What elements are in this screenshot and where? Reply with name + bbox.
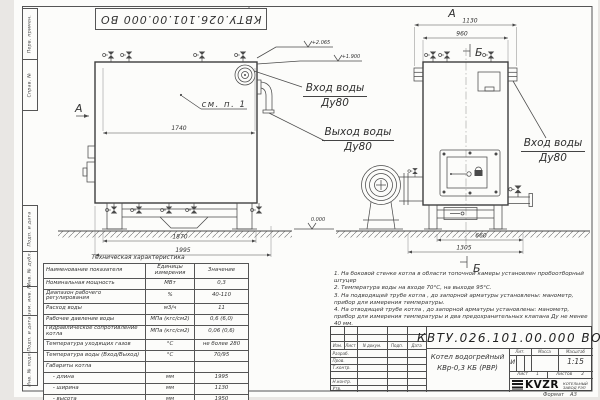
elev-2065: +2.065 [312,40,331,46]
lit-value: И [509,358,516,366]
marker-A-label: А [74,102,83,115]
label-inlet-right-line1: Вход воды [521,137,586,152]
title-block-doc-number: КВТУ.026.101.00.000 ВО [426,327,593,348]
row-nkontr: Н.контр. [333,379,358,384]
furnace-door [440,150,500,196]
side-supports [424,205,507,229]
dim-1870: 1870 [172,234,187,241]
sheet-cell: Лист 1 [509,372,547,377]
blower-fan [359,166,423,230]
table-row: Рабочее давление водыМПа (кгс/см2)0,6 (6… [44,314,249,325]
strip-label: Перв. примен. [28,15,33,53]
label-inlet-right-line2: Ду80 [539,152,567,164]
tech-table: Наименование показателя Единицы измерени… [43,263,249,400]
safety-valve-icon [235,52,247,63]
col-header: Значение [195,264,249,279]
label-inlet-top-line1: Вход воды [303,82,368,97]
scale-label: Масштаб [558,349,593,354]
col-doc: N докум. [357,343,387,348]
lock-icon [475,170,483,176]
view-A-title: А [447,7,456,20]
table-row: Температура воды (Вход/Выход)°С70/95 [44,350,249,361]
side-pipe [508,185,533,206]
kvzr-logo-text: KVZR [525,379,559,391]
scale-value: 1:15 [558,357,593,366]
col-header: Наименование показателя [44,264,146,279]
drain-valve-icon [131,203,143,214]
strip-label: Взам. инв. № [28,284,33,319]
col-header: Единицы измерения [146,264,195,279]
inverted-doc-number: КВТУ.026.101.00.000 ВО [95,8,267,30]
row-tkontr: Т.контр. [333,365,358,370]
safety-valve-icon [121,52,133,63]
section-B-top: Б [475,46,483,59]
product-name-line2: КВр-0,3 КБ (РВР) [426,363,509,374]
strip-label: Подп. и дата [28,317,33,352]
table-header-row: Наименование показателя Единицы измерени… [44,264,249,279]
product-name: Котел водогрейный КВр-0,3 КБ (РВР) [426,352,509,374]
label-outlet: Выход воды Ду80 [318,126,398,154]
sheets-label: Листов [556,372,572,377]
kvzr-logo-icon [512,380,523,390]
sheet-number: 1 [536,372,539,377]
safety-valve-icon [103,52,115,63]
table-row: Гидравлическое сопротивление котлаМПа (к… [44,325,249,339]
format-label: Формат [543,392,564,398]
company-line2: ЗАВОД РЭП [563,386,588,391]
dim-1740: 1740 [171,125,186,132]
see-note-callout: см. п. 1 [180,94,247,110]
sheets-number: 2 [581,372,584,377]
dim-1995: 1995 [175,247,190,254]
drawing-sheet: 1740 1870 1995 см. п. 1 В А [0,0,600,400]
strip-cell: Подп. и дата [22,315,38,353]
table-row: Номинальная мощностьМВт0,3 [44,279,249,290]
label-inlet-right: Вход воды Ду80 [516,137,590,165]
row-prov: Пров. [333,358,358,363]
dim-1130: 1130 [462,18,477,25]
duct-valve-icon [408,168,418,177]
label-inlet-top: Вход воды Ду80 [297,82,373,110]
note-line: 3. На подводящей трубе котла , до запорн… [334,293,592,307]
strip-cell: Перв. примен. [22,8,38,60]
col-sign: Подп. [387,343,407,348]
table-row: Диапазон рабочего регулирования%40-110 [44,290,249,304]
elev-0000: 0.000 [311,217,325,223]
elev-1900: +1.900 [342,54,361,60]
strip-cell: Инв. № подл. [22,352,38,386]
lit-label: Лит. [509,349,531,354]
sheet-label: Лист [517,372,528,377]
see-note-text: см. п. 1 [202,100,247,110]
note-line: 1. На боковой стенке котла в области топ… [334,271,592,285]
frame-strip-top: Перв. примен. Справ. № [22,8,38,111]
table-row: Температура уходящих газов°Сне более 280 [44,339,249,350]
table-row: - ширинамм1130 [44,383,249,394]
dim-960: 960 [456,31,468,38]
label-outlet-line1: Выход воды [322,126,395,141]
title-block: КВТУ.026.101.00.000 ВО Котел водогрейный… [330,326,592,391]
boiler-front-view [83,52,274,230]
pipe-valve-icon [509,185,522,197]
dim-660: 660 [475,233,487,240]
table-row: Габариты котла [44,361,249,372]
sheets-cell: Листов 2 [547,372,593,377]
row-utv: Утв. [333,386,358,391]
drain-valve-icon [186,203,198,214]
strip-label: Подп. и дата [28,211,33,246]
dim-1305: 1305 [456,245,471,252]
safety-valve-icon [439,52,451,63]
lock-icon [476,167,482,170]
strip-label: Инв. № дубл. [28,252,33,287]
view-marker-A-left: А [74,102,89,116]
strip-cell: Инв. № дубл. [22,251,38,287]
inverted-doc-number-text: КВТУ.026.101.00.000 ВО [100,13,261,26]
company-name: КОТЕЛЬНЫЙ ЗАВОД РЭП [563,382,588,392]
table-title: Техническая характеристика [43,254,233,261]
strip-cell: Подп. и дата [22,205,38,252]
tech-characteristics: Техническая характеристика Наименование … [43,254,233,400]
col-izm: Изм. [331,343,344,348]
strip-cell: Справ. № [22,59,38,111]
safety-valve-icon [194,52,206,63]
strip-label: Справ. № [28,73,33,98]
product-name-line1: Котел водогрейный [426,352,509,363]
col-list: Лист [344,343,357,348]
mass-label: Масса [531,349,558,354]
label-outlet-line2: Ду80 [344,141,372,153]
frame-strip-bottom: Подп. и дата Инв. № дубл. Взам. инв. № П… [22,205,38,386]
format-note: ФорматА3 [543,392,583,398]
ground-hatch [336,232,590,238]
safety-valve-icon [425,52,437,63]
table-row: - длинамм1995 [44,372,249,383]
table-row: Расход водым3/ч11 [44,303,249,314]
col-date: Дата [407,343,426,348]
format-value: А3 [570,392,577,398]
table-row: - высотамм1950 [44,394,249,400]
label-inlet-top-line2: Ду80 [321,97,349,109]
strip-cell: Взам. инв. № [22,286,38,316]
safety-valve-icon [483,52,495,63]
strip-label: Инв. № подл. [28,352,33,387]
note-line: 2. Температура воды на входе 70°С, на вы… [334,285,592,292]
row-razrab: Разраб. [333,351,358,356]
drain-valve-icon [161,203,173,214]
